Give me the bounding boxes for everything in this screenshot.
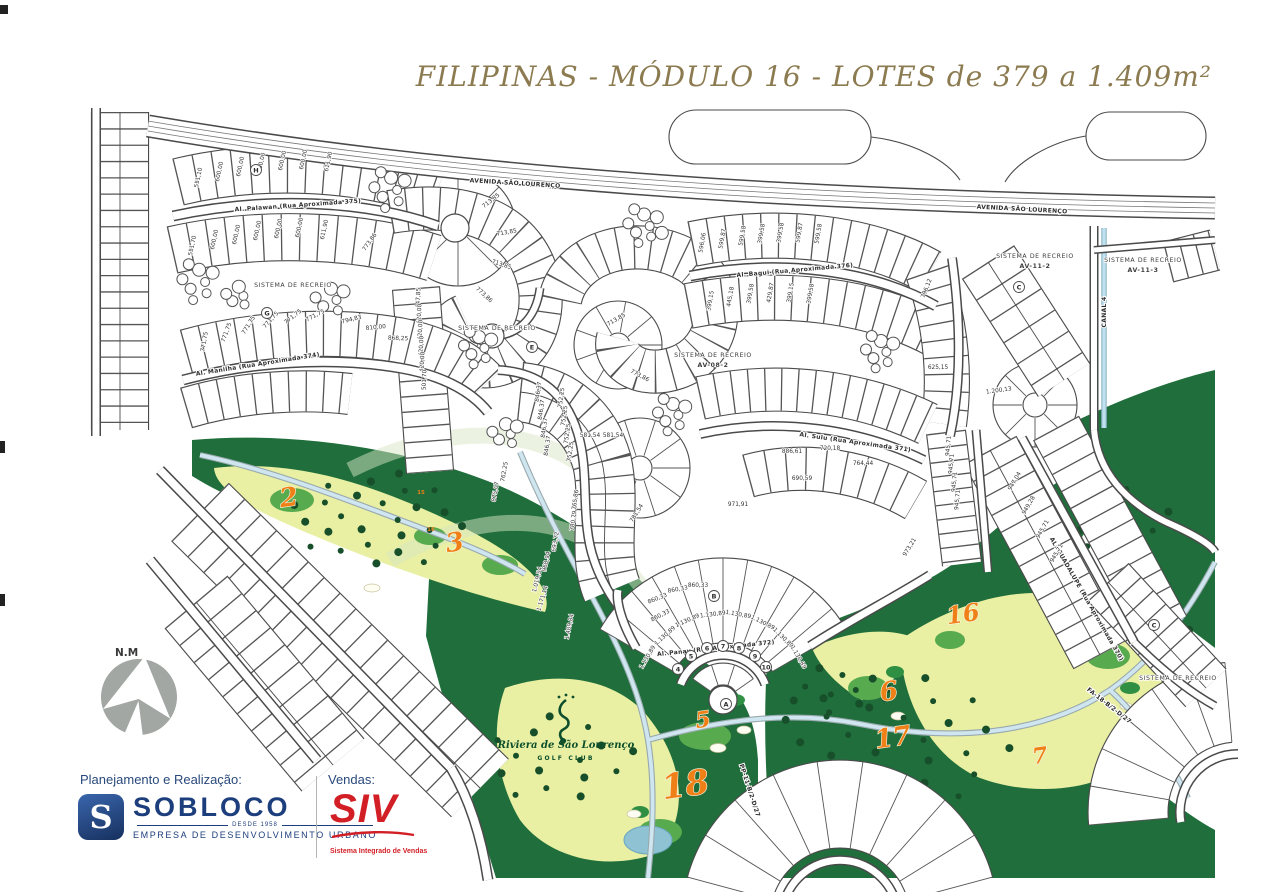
lot-area-label: 720,18 bbox=[820, 446, 841, 452]
lot-area-label: 581,54 bbox=[580, 433, 601, 439]
siv-logo: SIV Sistema Integrado de Vendas bbox=[330, 792, 427, 855]
lot-area-label: 971,91 bbox=[728, 502, 749, 508]
lot-area-label: 501,70 bbox=[422, 369, 429, 390]
lot-marker-label: G bbox=[264, 309, 269, 317]
siv-swoosh bbox=[330, 831, 416, 839]
golf-hole-number: 17 bbox=[873, 721, 913, 756]
site-plan-map: AVENIDA SÃO LOURENÇOAVENIDA SÃO LOURENÇO… bbox=[0, 0, 1280, 892]
lot-marker-label: B bbox=[712, 592, 717, 600]
lot-area-label: 581,54 bbox=[603, 433, 624, 439]
sobloco-icon: S bbox=[78, 794, 124, 840]
footer-divider bbox=[316, 776, 317, 858]
lot-area-label: 860,33 bbox=[688, 583, 709, 589]
compass: N.M bbox=[96, 647, 183, 743]
lot-marker-label: 8 bbox=[737, 644, 742, 652]
lot-marker-label: 4 bbox=[676, 665, 681, 673]
area-label: SISTEMA DE RECREIO bbox=[674, 352, 752, 359]
siv-tagline: Sistema Integrado de Vendas bbox=[330, 848, 427, 855]
area-label: AV-11-3 bbox=[1128, 267, 1159, 274]
area-label: SISTEMA DE RECREIO bbox=[254, 282, 332, 289]
compass-label: N.M bbox=[115, 647, 138, 659]
area-label: AV-11-2 bbox=[1020, 263, 1051, 270]
lot-marker-label: E bbox=[530, 343, 534, 351]
area-label: SISTEMA DE RECREIO bbox=[458, 325, 536, 332]
planning-label: Planejamento e Realização: bbox=[80, 772, 242, 787]
lot-marker-label: C bbox=[1017, 283, 1022, 291]
lot-area-label: 973,21 bbox=[902, 537, 918, 558]
golf-club-name: Riviera de São Lourenço bbox=[497, 740, 635, 751]
footer: Planejamento e Realização: S SOBLOCO DES… bbox=[78, 770, 426, 866]
site-plan-page: FILIPINAS - MÓDULO 16 - LOTES de 379 a 1… bbox=[0, 0, 1280, 892]
lot-area-label: 764,44 bbox=[853, 461, 874, 467]
street-label: CANAL 4 bbox=[1101, 297, 1108, 328]
lot-marker-label: A bbox=[723, 700, 728, 708]
lot-marker-label: 10 bbox=[761, 663, 771, 671]
lot-area-label: 690,59 bbox=[792, 476, 813, 482]
lot-area-label: 762,25 bbox=[500, 461, 509, 482]
lot-marker-label: 7 bbox=[721, 642, 726, 650]
tee-number: 16 bbox=[427, 527, 435, 533]
area-label: SISTEMA DE RECREIO bbox=[996, 253, 1074, 260]
golf-club-sub: GOLF CLUB bbox=[537, 755, 594, 762]
upper-road-loops bbox=[669, 110, 1206, 182]
lot-marker-label: H bbox=[253, 166, 258, 174]
lot-marker-label: C bbox=[1152, 621, 1157, 629]
tee-number: 15 bbox=[417, 490, 425, 496]
lot-area-label: 773,86 bbox=[474, 286, 493, 304]
lot-area-label: 420,00 bbox=[420, 351, 427, 372]
lot-area-label: 886,61 bbox=[782, 449, 803, 455]
area-label: AV-08-2 bbox=[698, 362, 729, 369]
area-label: SISTEMA DE RECREIO bbox=[1104, 257, 1182, 264]
golf-hole-number: 16 bbox=[944, 597, 981, 630]
lot-area-label: 868,25 bbox=[388, 336, 409, 343]
area-label: SISTEMA DE RECREIO bbox=[1139, 675, 1217, 682]
siv-name: SIV bbox=[330, 792, 427, 826]
golf-hole-number: 18 bbox=[659, 762, 711, 808]
lot-marker-label: 9 bbox=[753, 652, 758, 660]
lot-marker-label: 6 bbox=[705, 644, 710, 652]
sales-label: Vendas: bbox=[328, 772, 375, 787]
lot-marker-label: 5 bbox=[689, 652, 694, 660]
lot-area-label: 625,15 bbox=[928, 365, 949, 371]
